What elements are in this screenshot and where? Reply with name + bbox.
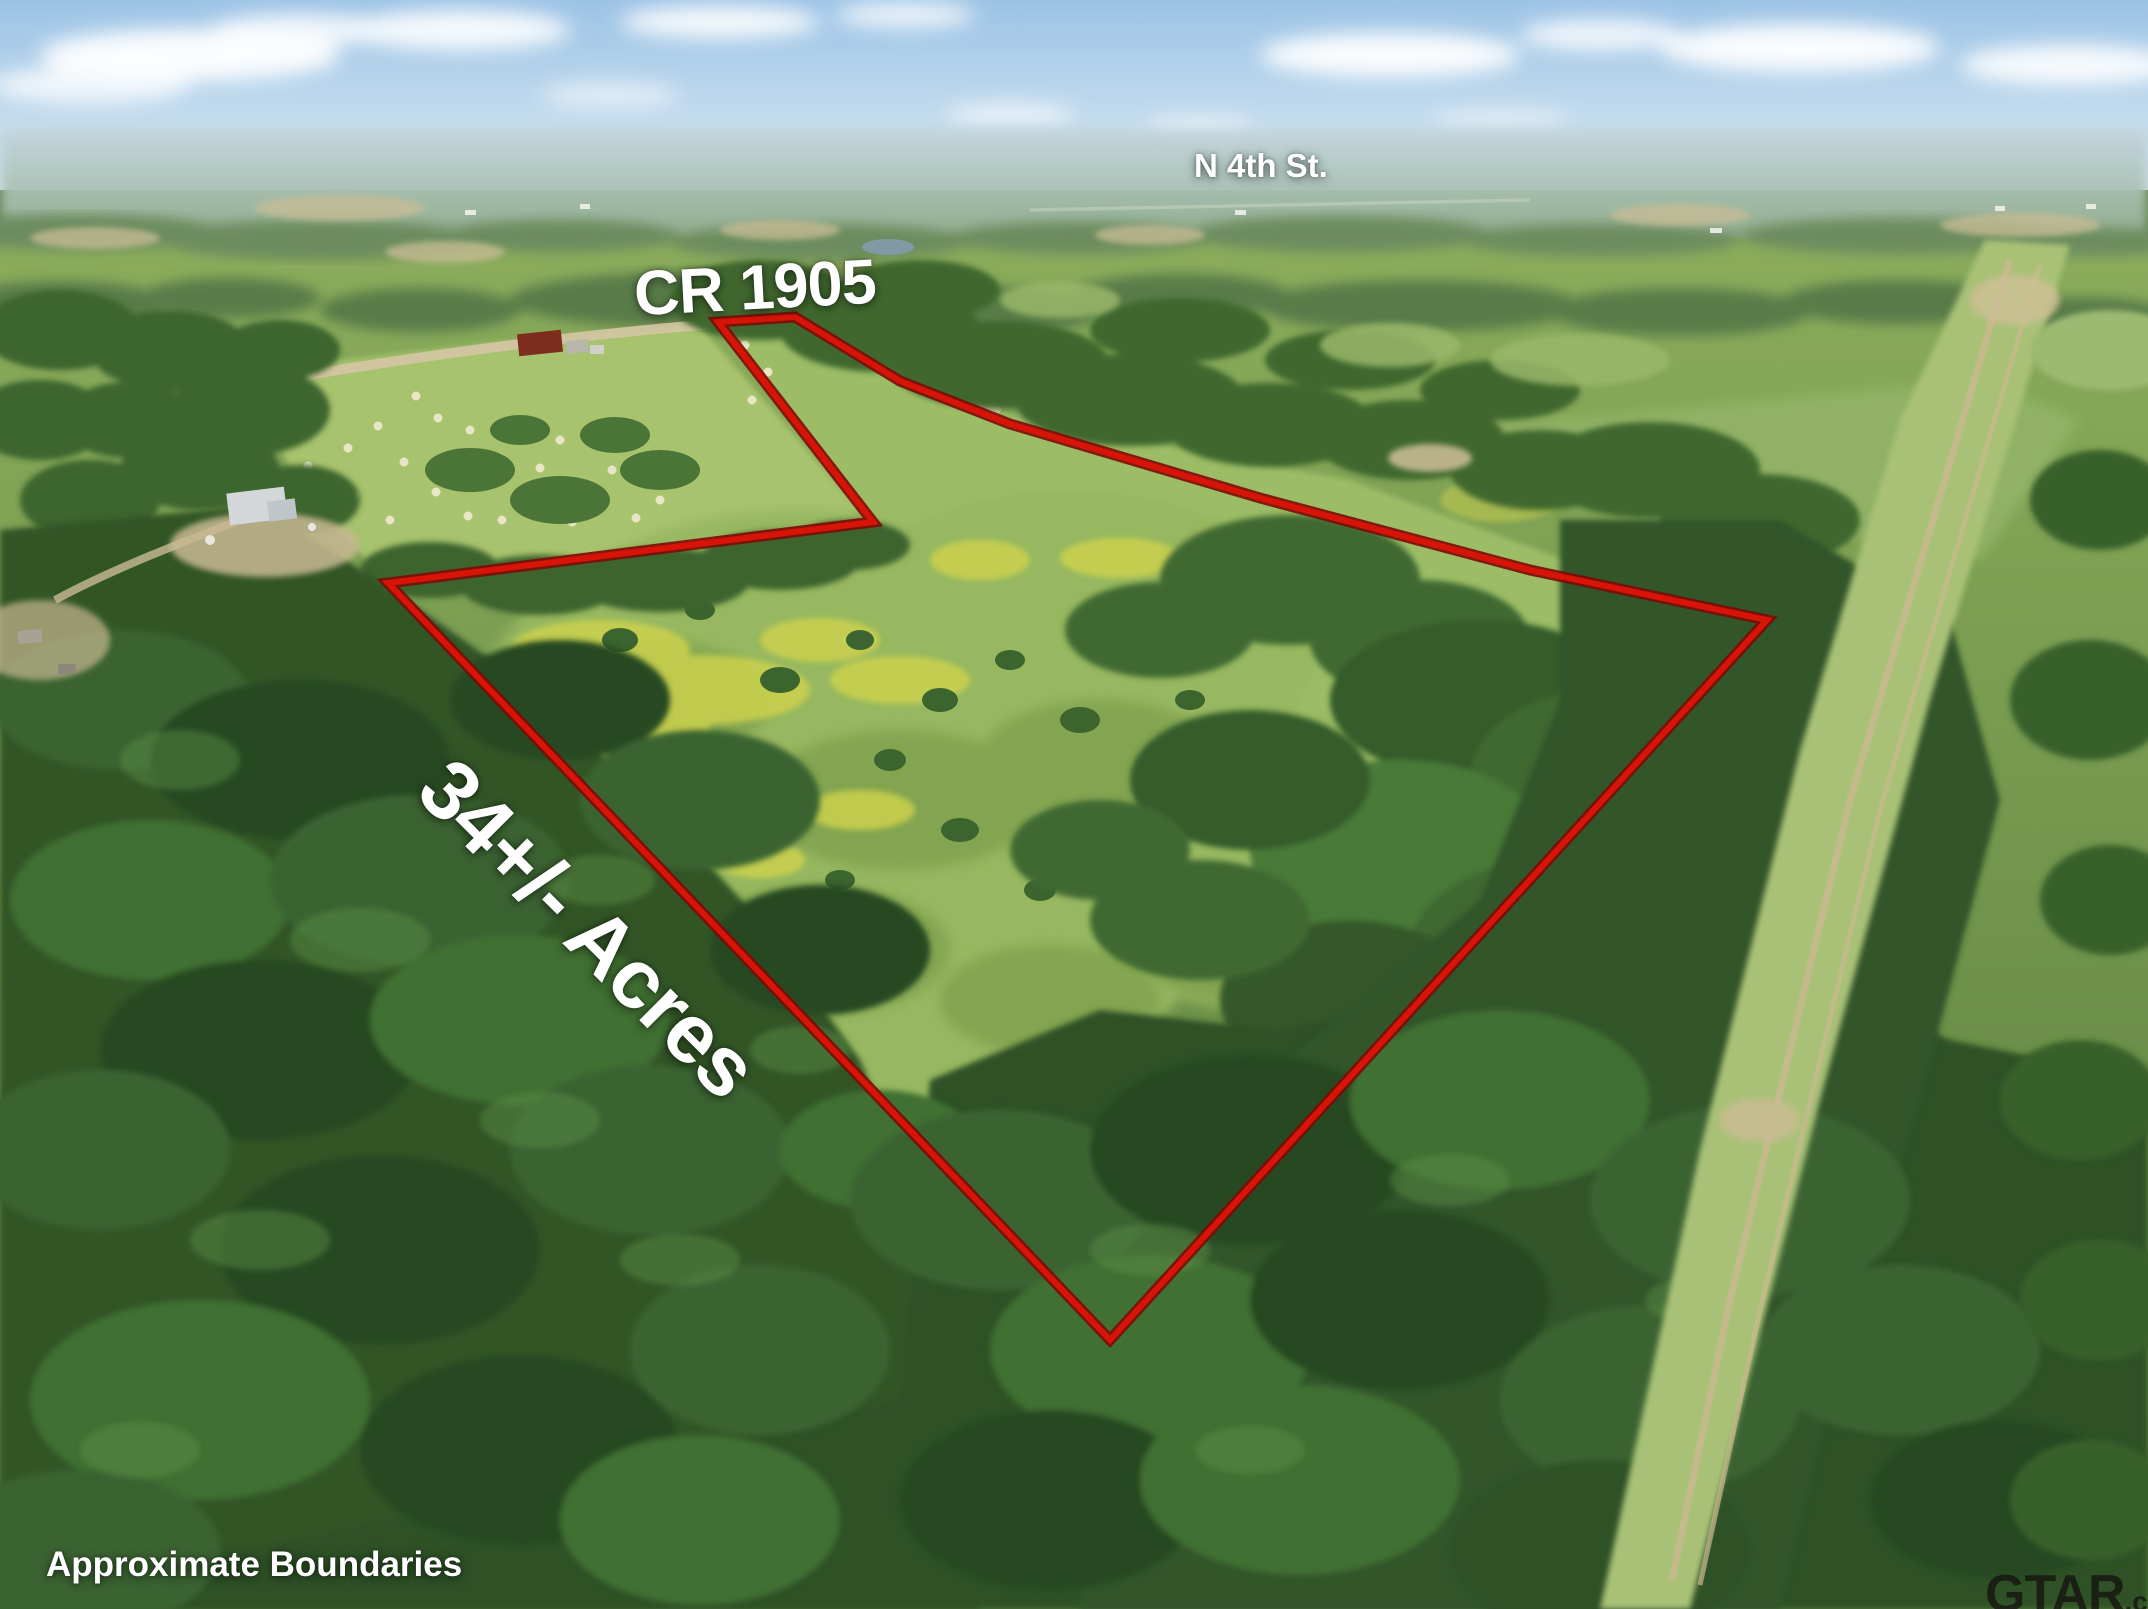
disclaimer-label: Approximate Boundaries <box>46 1545 462 1585</box>
watermark-suffix: .com <box>2124 1586 2148 1609</box>
watermark-brand: GTAR <box>1985 1565 2124 1609</box>
watermark: GTAR.com <box>1985 1568 2148 1609</box>
road-label: CR 1905 <box>632 246 877 331</box>
street-label: N 4th St. <box>1194 147 1328 185</box>
aerial-photo: N 4th St. CR 1905 34+/- Acres Approximat… <box>0 0 2148 1609</box>
left-tree-belt <box>0 290 360 540</box>
landscape-svg <box>0 0 2148 1609</box>
